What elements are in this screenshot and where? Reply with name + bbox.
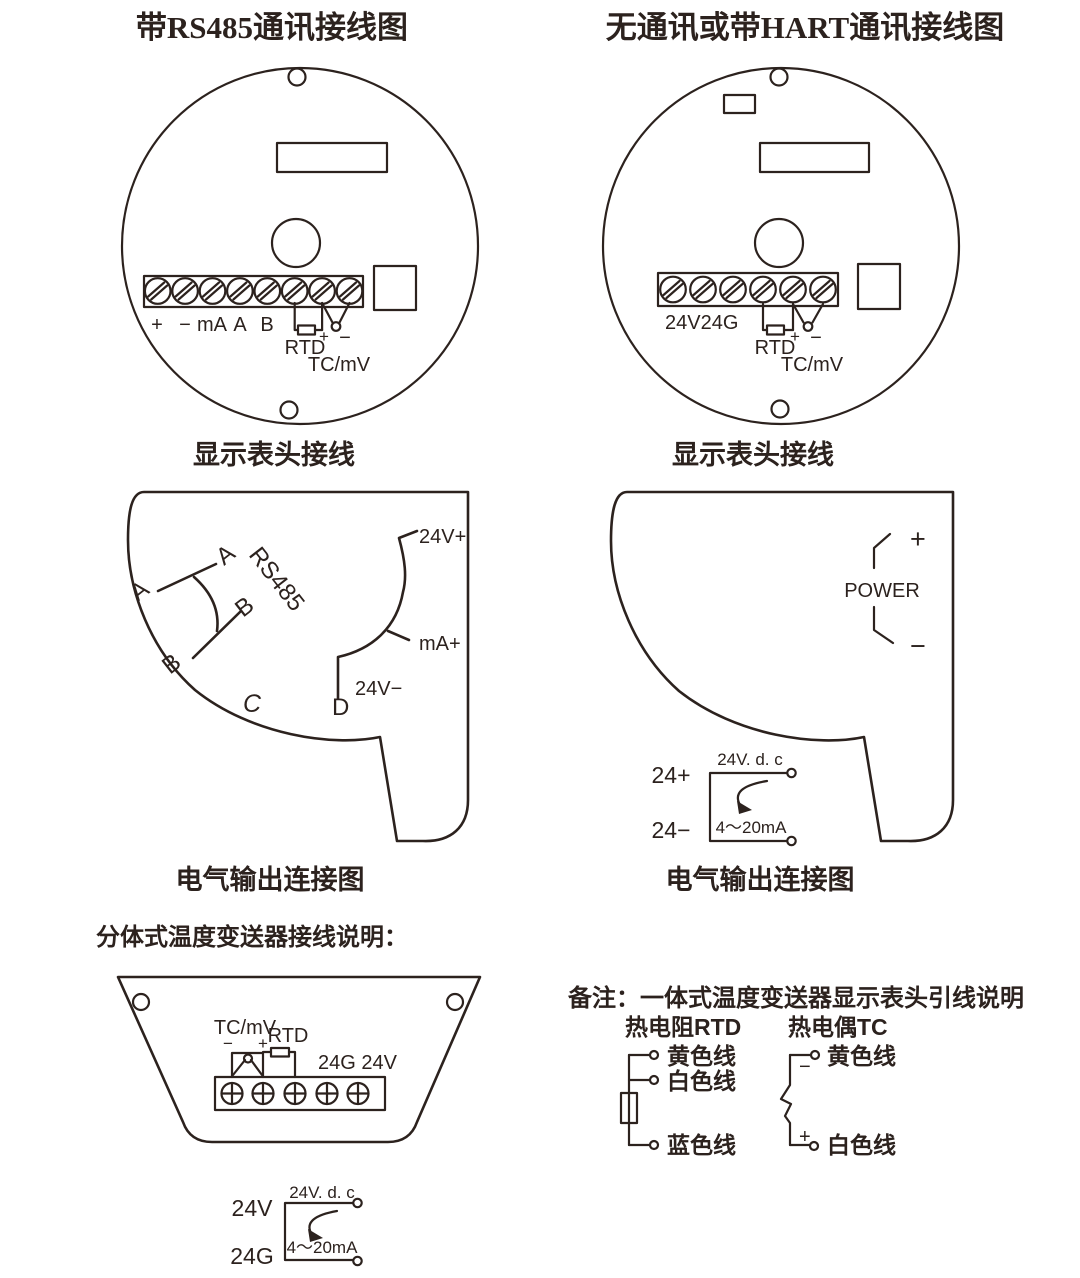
loop-terminal-bottom — [787, 837, 795, 845]
tc-lead-spine — [781, 1055, 791, 1145]
power-bracket-top — [874, 534, 890, 568]
terminal-screw — [750, 277, 776, 303]
loop-arrow — [738, 781, 767, 805]
loop-arrow — [309, 1211, 337, 1233]
caption-display-head-left: 显示表头接线 — [193, 440, 355, 470]
ma-tick — [388, 631, 409, 640]
terminal-label-a: A — [233, 314, 247, 336]
lead-terminal — [650, 1051, 658, 1059]
terminal-screw — [254, 278, 280, 304]
split-transmitter-diagram: TC/mV RTD − + 24G 24V — [118, 977, 480, 1142]
rtd-blue-wire-label: 蓝色线 — [667, 1132, 736, 1158]
terminal-screw — [145, 278, 171, 304]
rs485-head-diagram: + − mA A B RTD + − TC/mV — [122, 68, 478, 424]
rtd-leads-title: 热电阻RTD — [625, 1014, 741, 1040]
lead-terminal — [810, 1142, 818, 1150]
terminal-screw — [222, 1083, 243, 1104]
tc-leg-right — [251, 1060, 262, 1075]
label-24v: 24V — [232, 1195, 274, 1221]
tc-leads-title: 热电偶TC — [788, 1014, 888, 1040]
keyhole-cut — [338, 531, 417, 698]
housing-circle — [122, 68, 478, 424]
terminal-screw — [780, 277, 806, 303]
loop-arrowhead — [737, 801, 752, 814]
title-rs485: 带RS485通讯接线图 — [136, 10, 408, 45]
split-type-note: 分体式温度变送器接线说明： — [96, 923, 408, 951]
rtd-white-wire-label: 白色线 — [667, 1068, 736, 1094]
lead-terminal — [650, 1141, 658, 1149]
rtd-label: RTD — [268, 1025, 309, 1047]
power-label: POWER — [844, 580, 920, 602]
terminal-screw — [309, 278, 335, 304]
wire-a — [158, 564, 216, 591]
loop-current-label: 4～20mA — [716, 818, 788, 837]
wire-arc — [194, 577, 218, 631]
loop-terminal-top — [787, 769, 795, 777]
terminal-screw — [200, 278, 226, 304]
tc-leads-diagram: − + 黄色线 白色线 — [781, 1043, 896, 1158]
terminal-screw — [282, 278, 308, 304]
screw-hole-bottom — [281, 402, 298, 419]
terminal-label-minus: − — [179, 314, 191, 336]
label-a-lower: A — [125, 576, 154, 607]
split-loop-diagram: 24V. d. c 24V 24G 4～20mA — [230, 1183, 361, 1269]
tc-plus-label: + — [790, 327, 800, 346]
tc-minus-label: − — [799, 1056, 811, 1078]
caption-output-left: 电气输出连接图 — [176, 864, 365, 895]
terminal-screw — [720, 277, 746, 303]
rtd-resistor — [298, 326, 315, 335]
tc-yellow-wire-label: 黄色线 — [827, 1043, 896, 1069]
terminal-screw — [285, 1083, 306, 1104]
caption-output-right: 电气输出连接图 — [666, 864, 855, 895]
power-bracket-bottom — [874, 607, 893, 643]
lead-terminal — [811, 1051, 819, 1059]
hart-output-diagram: + − POWER 24V. d. c 24+ 24− 4～20mA — [611, 492, 953, 845]
panel-outline — [118, 977, 480, 1142]
terminal-screw — [337, 278, 363, 304]
title-hart: 无通讯或带HART通讯接线图 — [606, 10, 1004, 45]
label-24v-minus: 24V− — [355, 678, 402, 700]
supply-label: 24V. d. c — [717, 750, 783, 769]
label-d: D — [332, 694, 349, 721]
label-ma-plus: mA+ — [419, 633, 461, 655]
remark-title: 备注：一体式温度变送器显示表头引线说明 — [567, 984, 1024, 1012]
terminal-screw — [810, 277, 836, 303]
power-minus: − — [910, 631, 926, 661]
terminal-label-ma: mA — [197, 314, 228, 336]
tc-plus-label: + — [799, 1126, 811, 1148]
tc-minus-label: − — [223, 1034, 233, 1053]
wiring-diagram-page: 带RS485通讯接线图 无通讯或带HART通讯接线图 + − mA A B RT… — [0, 0, 1080, 1278]
tc-label: TC/mV — [308, 354, 371, 376]
screw-hole-top — [289, 69, 306, 86]
tc-leg-left — [233, 1060, 245, 1075]
rtd-resistor — [271, 1048, 289, 1057]
display-window — [760, 143, 869, 172]
screw-hole-left — [133, 994, 149, 1010]
terminal-screw — [227, 278, 253, 304]
terminal-label-b: B — [260, 314, 273, 336]
tc-minus-label: − — [339, 327, 351, 349]
screw-hole-bottom — [772, 401, 789, 418]
label-a-upper: A — [211, 540, 240, 571]
power-terminals-label: 24V24G — [665, 312, 738, 334]
terminal-screw — [660, 277, 686, 303]
power-terminals-label: 24G 24V — [318, 1052, 398, 1074]
screw-hole-right — [447, 994, 463, 1010]
supply-label: 24V. d. c — [289, 1183, 355, 1202]
terminal-screw — [172, 278, 198, 304]
rs485-output-diagram: A A B B RS485 C D 24V+ mA+ 24V− — [125, 492, 468, 841]
terminal-screw — [253, 1083, 274, 1104]
button-circle — [272, 219, 320, 267]
loop-current-label: 4～20mA — [287, 1238, 359, 1257]
display-window — [277, 143, 387, 172]
caption-display-head-right: 显示表头接线 — [672, 440, 834, 470]
button-circle — [755, 219, 803, 267]
terminal-screw — [317, 1083, 338, 1104]
screw-hole-top — [771, 69, 788, 86]
power-plus: + — [910, 524, 926, 554]
rtd-leads-diagram: 黄色线 白色线 蓝色线 — [621, 1043, 736, 1158]
tc-junction — [244, 1055, 252, 1063]
tc-outline — [232, 1053, 263, 1077]
connector-square — [858, 264, 900, 309]
tc-white-wire-label: 白色线 — [827, 1132, 896, 1158]
loop-terminal-bottom — [353, 1257, 361, 1265]
small-window — [724, 95, 755, 113]
tc-plus-label: + — [319, 327, 329, 346]
tc-label: TC/mV — [781, 354, 844, 376]
label-b-lower: B — [157, 649, 186, 680]
connector-square — [374, 266, 416, 310]
tc-plus-label: + — [258, 1034, 268, 1053]
rtd-yellow-wire-label: 黄色线 — [667, 1043, 736, 1069]
rtd-resistor — [767, 326, 784, 335]
diagram-canvas: 带RS485通讯接线图 无通讯或带HART通讯接线图 + − mA A B RT… — [0, 0, 1080, 1278]
label-24v-plus: 24V+ — [419, 526, 466, 548]
tc-minus-label: − — [810, 327, 822, 349]
terminal-screw — [348, 1083, 369, 1104]
lead-terminal — [650, 1076, 658, 1084]
terminal-label-plus: + — [151, 314, 163, 336]
terminal-screw — [690, 277, 716, 303]
hart-head-diagram: 24V24G RTD + − TC/mV — [603, 68, 959, 424]
panel-outline — [611, 492, 953, 841]
loop-terminal-top — [353, 1199, 361, 1207]
label-c: C — [243, 690, 262, 718]
label-24-plus: 24+ — [651, 762, 690, 788]
label-24-minus: 24− — [651, 817, 690, 843]
label-24g: 24G — [230, 1243, 273, 1269]
